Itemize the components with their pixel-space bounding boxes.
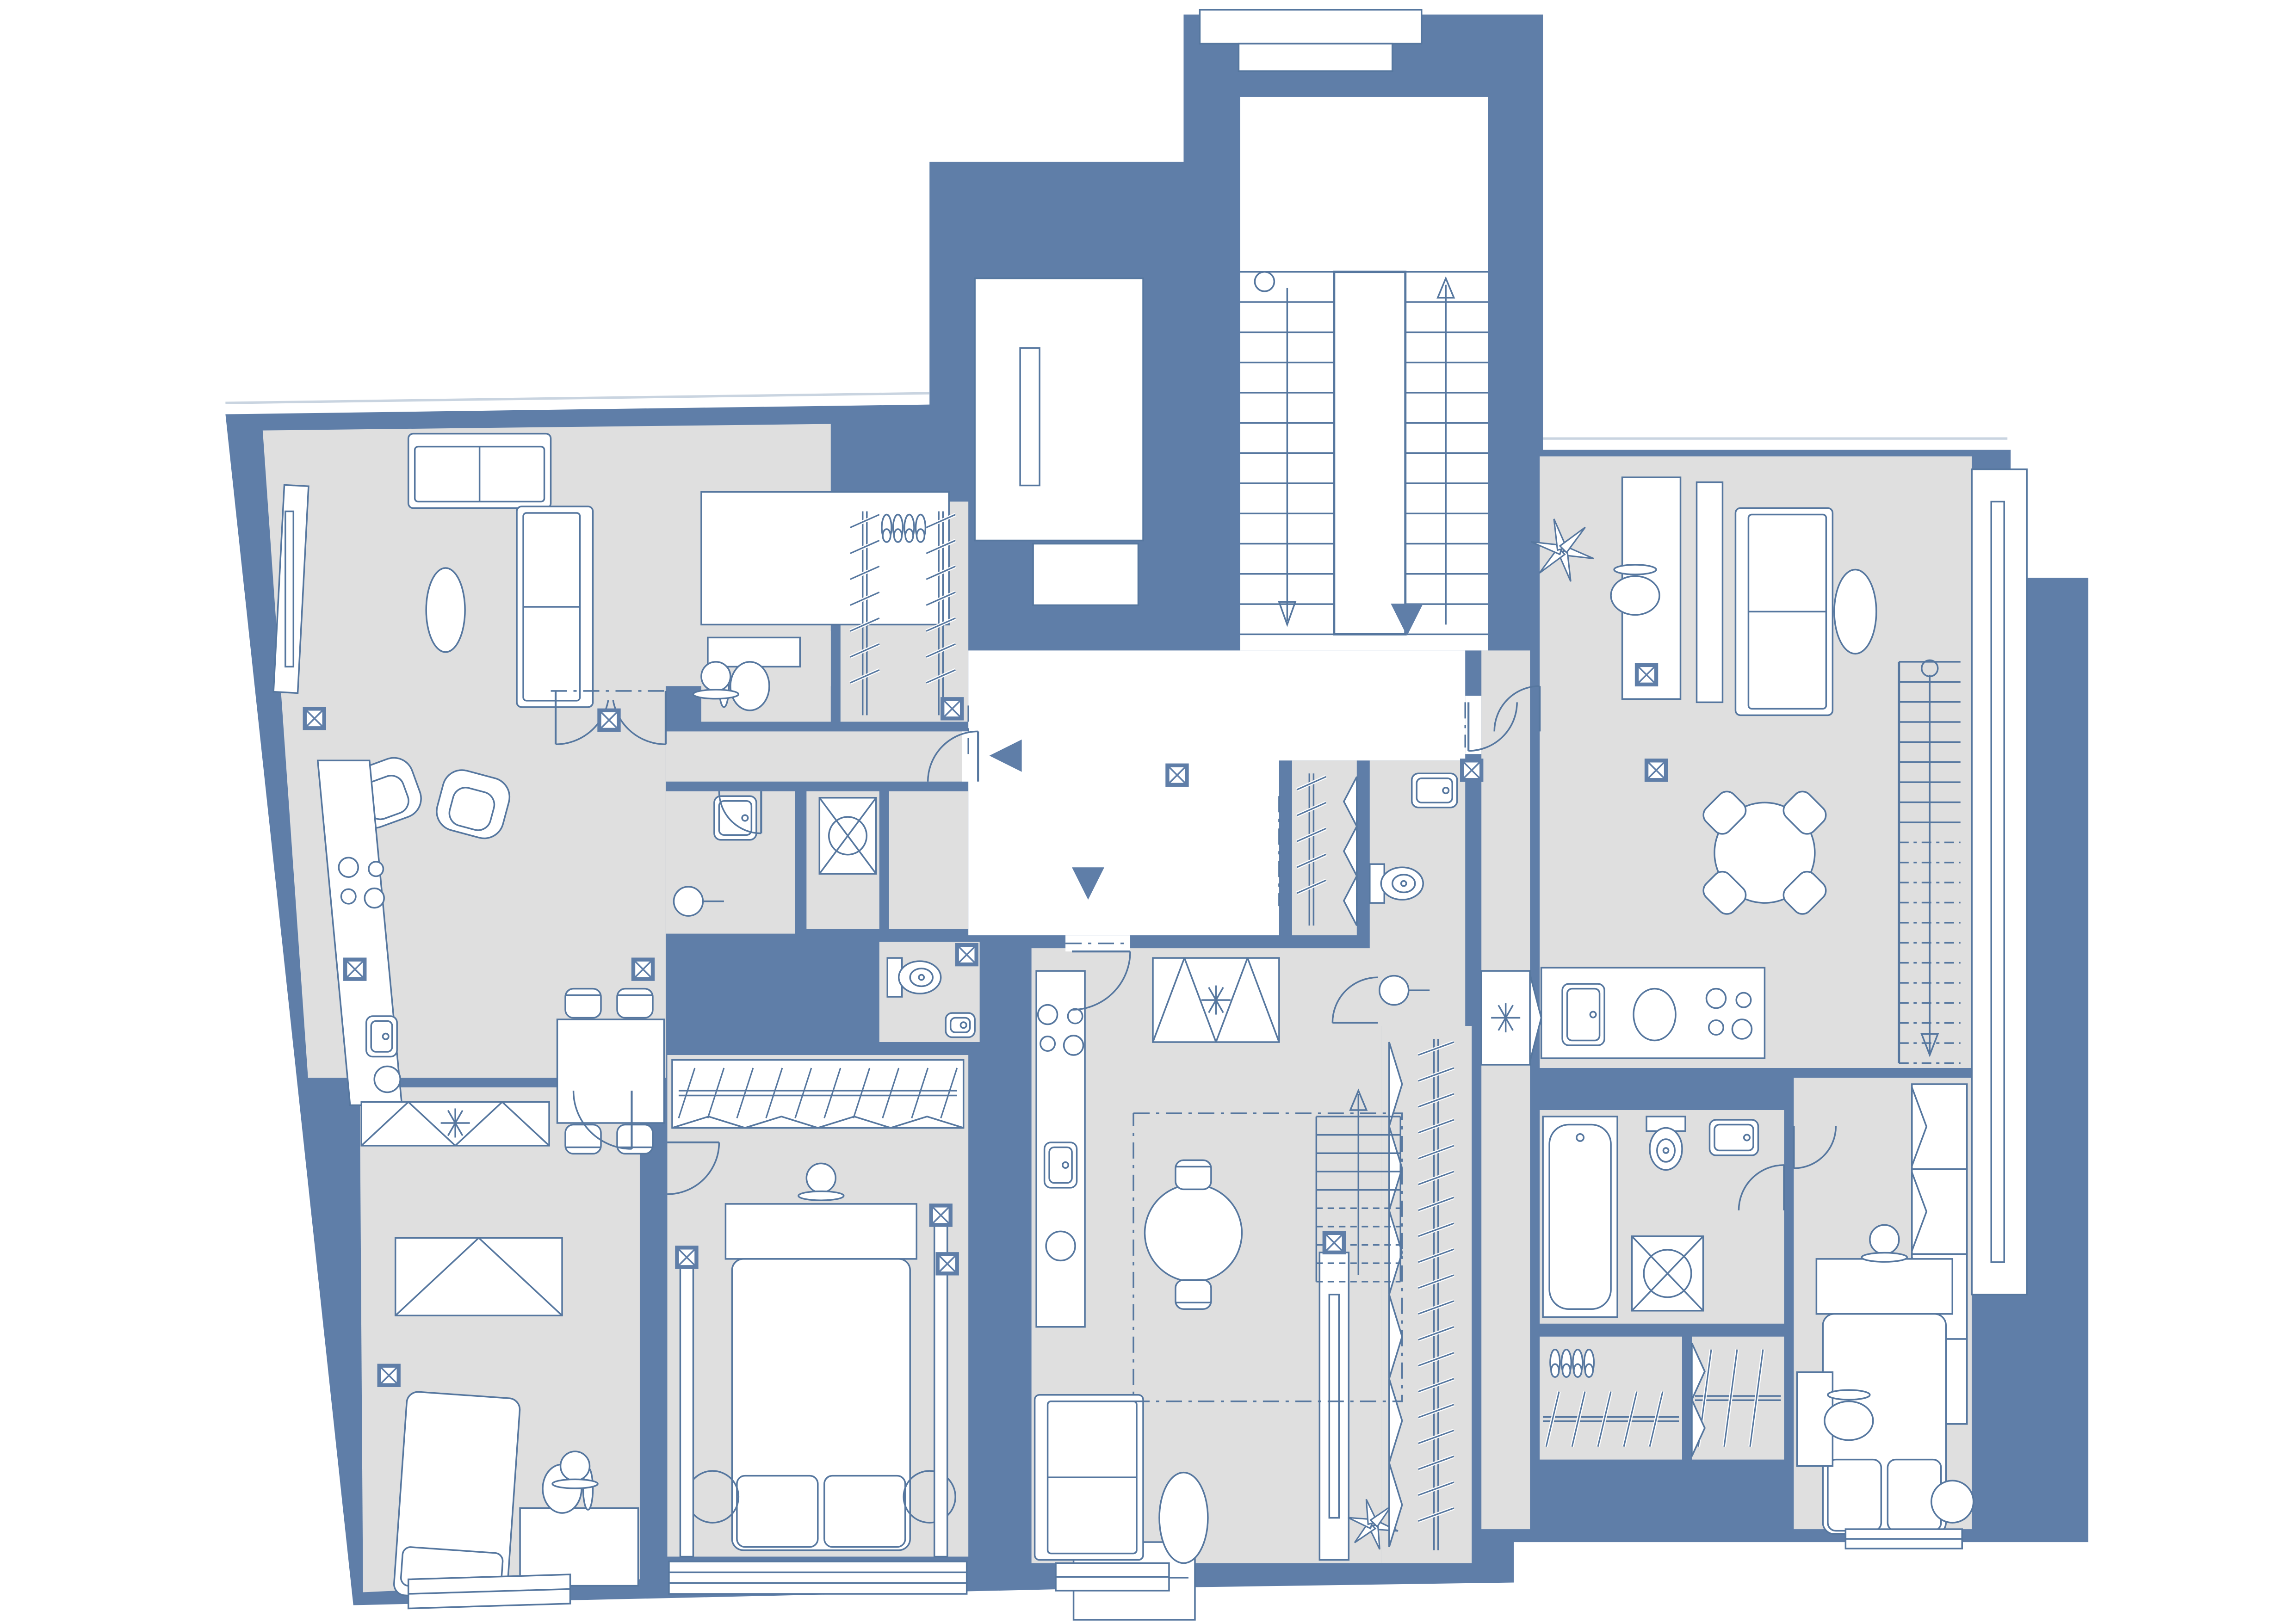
chair bbox=[617, 1124, 653, 1154]
burner bbox=[1068, 1009, 1082, 1023]
shoe-toe bbox=[894, 529, 902, 542]
office-void bbox=[701, 492, 949, 625]
bathtub-inner bbox=[1549, 1124, 1611, 1309]
basin bbox=[1046, 1231, 1075, 1260]
ellipse bbox=[1611, 576, 1659, 615]
rect bbox=[1176, 1160, 1211, 1189]
room-apartmentA-wc-ante bbox=[889, 791, 968, 929]
shoe-toe bbox=[1574, 1364, 1582, 1377]
pendant-lamp bbox=[806, 1163, 835, 1192]
stair-shaft bbox=[1334, 272, 1405, 635]
elevator-shaft-inner bbox=[1020, 348, 1040, 485]
double-bed-duvet bbox=[824, 1476, 905, 1547]
ellipse bbox=[730, 662, 769, 710]
shoe-toe bbox=[1551, 1364, 1559, 1377]
chair bbox=[565, 1124, 601, 1154]
shoe-toe bbox=[1585, 1364, 1593, 1377]
shoe-toe bbox=[883, 529, 891, 542]
washbasin-bowl bbox=[719, 801, 751, 835]
pendant-lamp bbox=[1870, 1225, 1899, 1254]
double-bed-duvet bbox=[1828, 1460, 1881, 1531]
burner bbox=[365, 889, 384, 908]
lamp-disc bbox=[693, 690, 738, 699]
ellipse bbox=[1825, 1401, 1873, 1440]
chair bbox=[617, 989, 653, 1018]
lamp bbox=[701, 662, 730, 691]
rect bbox=[617, 1124, 653, 1154]
room-apartmentR-hall bbox=[1481, 650, 1530, 1529]
pendant-lamp-disc bbox=[1862, 1253, 1907, 1262]
toilet-bowl bbox=[1650, 1128, 1682, 1170]
washbasin-bowl bbox=[1714, 1124, 1753, 1150]
stair-vestibule bbox=[1033, 543, 1138, 605]
burner bbox=[369, 862, 383, 876]
floor-plan-svg bbox=[0, 0, 2296, 1623]
rect bbox=[565, 1124, 601, 1154]
desk-lamp-disc bbox=[552, 1479, 598, 1488]
sideboard bbox=[1696, 482, 1722, 703]
toilet-bowl bbox=[899, 961, 941, 994]
chair bbox=[1176, 1280, 1211, 1309]
shower-mixer bbox=[1380, 976, 1409, 1005]
burner bbox=[339, 858, 358, 877]
coffee-table bbox=[426, 568, 465, 652]
burner bbox=[1040, 1037, 1055, 1051]
elevator-shaft bbox=[975, 278, 1143, 541]
double-bed-headboard bbox=[725, 1204, 916, 1259]
kids-desk bbox=[520, 1508, 638, 1586]
rect bbox=[1176, 1280, 1211, 1309]
basin bbox=[374, 1067, 400, 1092]
rect bbox=[617, 989, 653, 1018]
chair bbox=[1176, 1160, 1211, 1189]
coffee-table bbox=[1159, 1473, 1208, 1563]
dining-table bbox=[557, 1019, 664, 1123]
burner bbox=[1736, 993, 1751, 1007]
shoe-toe bbox=[905, 529, 913, 542]
washbasin-bowl bbox=[1417, 778, 1452, 802]
basin bbox=[1634, 989, 1676, 1041]
desk-chair bbox=[1825, 1390, 1873, 1440]
round-table bbox=[1145, 1185, 1242, 1282]
shower-mixer bbox=[674, 887, 703, 916]
window-mullion bbox=[680, 1265, 693, 1557]
shoe-toe bbox=[1562, 1364, 1570, 1377]
double-bed-duvet bbox=[737, 1476, 818, 1547]
chair bbox=[565, 989, 601, 1018]
shoe-toe bbox=[917, 529, 925, 542]
kitchen-sink-bowl bbox=[1567, 989, 1600, 1041]
desk-chair bbox=[1611, 565, 1659, 615]
burner bbox=[1709, 1020, 1723, 1035]
burner bbox=[1038, 1005, 1058, 1024]
ellipse bbox=[1828, 1390, 1870, 1400]
burner bbox=[1706, 989, 1726, 1008]
facade-line bbox=[225, 393, 929, 403]
burner bbox=[1064, 1036, 1083, 1055]
burner bbox=[341, 889, 355, 903]
sideboard-inner bbox=[285, 512, 293, 667]
window-a-bedroom bbox=[669, 1561, 967, 1594]
pendant-lamp-disc bbox=[798, 1191, 844, 1201]
burner bbox=[1732, 1019, 1751, 1039]
toilet-bowl bbox=[1381, 867, 1423, 900]
tv-unit-inner bbox=[1329, 1295, 1339, 1518]
window-band-right-inner bbox=[1991, 502, 2004, 1262]
kids-wardrobe bbox=[396, 1238, 562, 1315]
entry-stoop-lower bbox=[1238, 43, 1392, 71]
desk-lamp bbox=[561, 1451, 590, 1481]
ellipse bbox=[1614, 565, 1656, 574]
pouf bbox=[1931, 1481, 1974, 1523]
entry-stoop-upper bbox=[1200, 10, 1421, 43]
double-bed-headboard bbox=[1816, 1259, 1952, 1314]
floor-plan-page bbox=[0, 0, 2296, 1623]
coffee-table bbox=[1834, 569, 1876, 654]
single-bed bbox=[393, 1391, 520, 1603]
rect bbox=[565, 989, 601, 1018]
room-apartmentA-hall bbox=[666, 731, 968, 781]
